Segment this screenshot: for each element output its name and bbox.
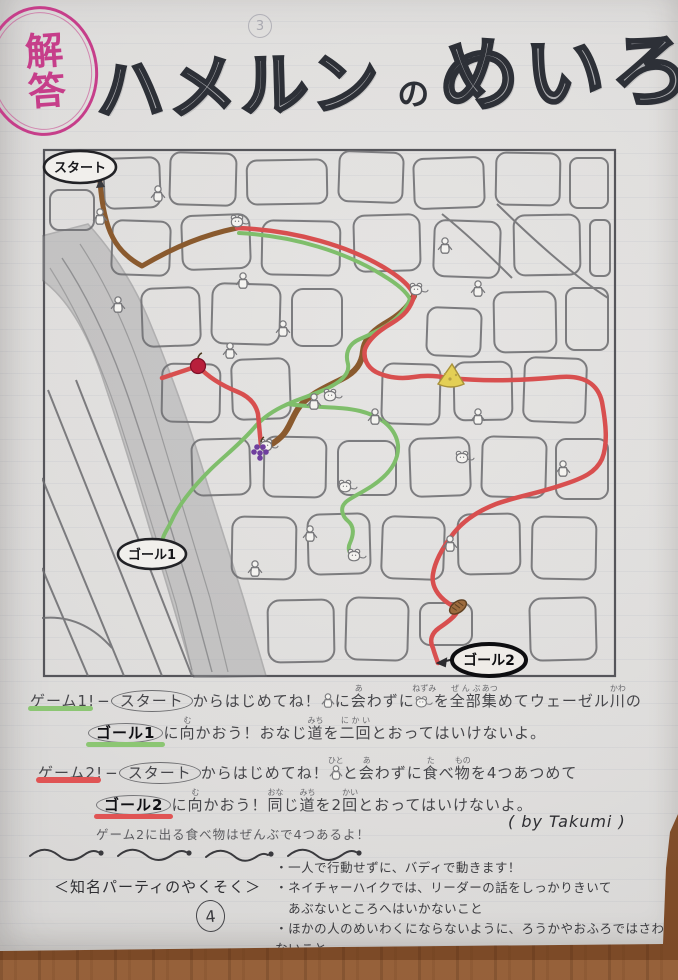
start-route-center <box>264 296 414 448</box>
rule-item: ・一人で行動せずに、バディで動きます！ <box>275 858 678 878</box>
start-route <box>100 182 237 266</box>
author-byline: ( by Takumi ) <box>508 812 626 831</box>
title-particle: の <box>397 69 430 116</box>
rules-section: ＜知名パーティのやくそく＞ ・一人で行動せずに、バディで動きます！・ネイチャーハ… <box>0 854 678 980</box>
start-label: スタート <box>44 151 116 183</box>
game1-instructions: ゲーム1!−スタートからはじめてね！に会あわずにねずみを全部ぜんぶ集あつめてウェ… <box>30 684 655 750</box>
game2-route-arc <box>237 228 414 296</box>
svg-text:スタート: スタート <box>54 161 106 176</box>
mouse-icon <box>412 692 436 710</box>
rule-item: あぶないところへはいかないこと <box>275 899 678 919</box>
svg-text:ゴール2: ゴール2 <box>463 652 515 669</box>
goal1-label: ゴール1 <box>118 539 186 569</box>
mice-figures <box>231 215 474 561</box>
game2-note: ゲーム2に出る食べ物はぜんぶで4つあるよ！ <box>96 824 370 843</box>
bread-item <box>447 597 469 617</box>
worksheet-paper: 解答 ハメルン の めいろ 3 <box>0 0 678 960</box>
rule-item: ・ほかの人のめいわくにならないように、ろうかやおふろではさわがないこと <box>275 919 678 960</box>
person-icon <box>328 764 344 782</box>
rules-list: ・一人で行動せずに、バディで動きます！・ネイチャーハイクでは、リーダーの話をしっ… <box>275 858 678 980</box>
goal2-label: ゴール2 <box>452 644 526 676</box>
title-part2: めいろ <box>437 5 678 128</box>
title-part1: ハメルン <box>95 27 384 134</box>
rule-item: ・じぶんのゴミはできるだけもちかえります！ <box>275 959 678 979</box>
apple-item <box>191 353 206 374</box>
answer-stamp: 解答 <box>0 0 106 142</box>
answer-stamp-text: 解答 <box>20 30 63 112</box>
person-icon <box>321 692 335 710</box>
maze-map: スタート ゴール1 ゴール2 <box>42 148 617 678</box>
rule-item: ・ネイチャーハイクでは、リーダーの話をしっかりきいて <box>275 878 678 898</box>
page-title: ハメルン の めいろ <box>94 6 667 138</box>
rules-heading: ＜知名パーティのやくそく＞ <box>54 876 261 980</box>
svg-text:ゴール1: ゴール1 <box>128 547 176 563</box>
faint-page-mark: 3 <box>248 14 272 38</box>
